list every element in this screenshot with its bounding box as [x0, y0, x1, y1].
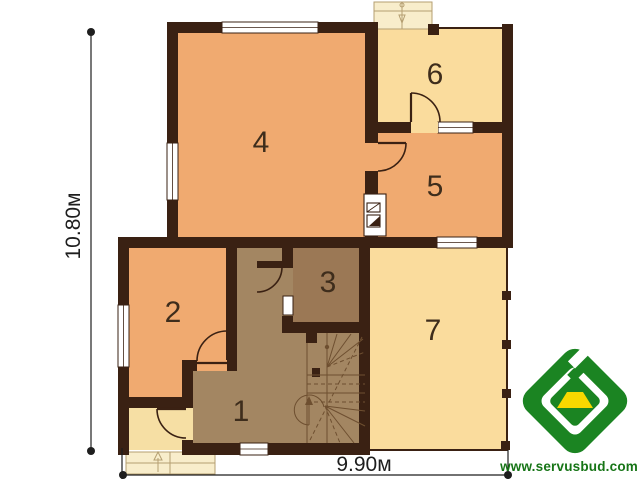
width-dimension-label: 9.90м — [336, 453, 391, 476]
room-label-6: 6 — [427, 58, 444, 91]
door-opening — [365, 143, 378, 171]
wall-stub — [306, 333, 317, 343]
company-logo: www.servusbud.com — [499, 342, 638, 474]
terrace-column — [502, 291, 511, 300]
vestibule-area — [129, 408, 183, 450]
room-label-2: 2 — [165, 296, 182, 329]
logo-website-text: www.servusbud.com — [499, 459, 638, 474]
room-label-3: 3 — [320, 266, 337, 299]
door-opening — [182, 408, 193, 440]
hall-area-upper — [237, 333, 359, 371]
floorplan-canvas: 10.80м 9.90м 1 2 3 4 5 6 7 www.servusbud… — [0, 0, 640, 480]
terrace-column — [501, 441, 510, 450]
wall-segment — [282, 237, 293, 268]
wall-stub — [257, 261, 283, 268]
room-7-area — [370, 248, 507, 450]
wall-segment — [167, 22, 178, 248]
dimension-dot — [87, 447, 95, 455]
room-label-1: 1 — [233, 395, 250, 428]
wall-segment — [182, 443, 240, 455]
height-dimension-label: 10.80м — [62, 193, 85, 260]
wall-segment — [473, 122, 502, 133]
terrace-column — [502, 340, 511, 349]
door-opening — [197, 360, 227, 371]
wall-segment — [118, 397, 193, 408]
door-opening — [411, 122, 438, 133]
chimney-block — [364, 194, 386, 236]
top-porch — [374, 2, 432, 29]
wall-segment — [118, 237, 437, 248]
wall-segment — [477, 237, 513, 248]
room-label-4: 4 — [253, 126, 270, 159]
room-label-5: 5 — [427, 170, 444, 203]
floor-plan-svg: 10.80м 9.90м 1 2 3 4 5 6 7 www.servusbud… — [0, 0, 640, 480]
stair-post-dot — [325, 345, 329, 349]
wall-segment — [227, 360, 237, 371]
entry-steps — [126, 452, 215, 474]
door-leaf — [283, 296, 293, 315]
wall-segment — [226, 237, 237, 363]
dimension-dot — [119, 471, 127, 479]
wall-segment — [282, 322, 370, 333]
stair-newel-post — [312, 368, 320, 377]
wall-segment — [359, 237, 370, 455]
dimension-dot — [87, 28, 95, 36]
wall-segment — [365, 122, 411, 133]
corridor-area — [237, 248, 282, 333]
terrace-column — [502, 389, 511, 398]
room-4-area — [178, 33, 365, 237]
room-2-area-lower — [129, 360, 182, 397]
room-label-7: 7 — [425, 314, 442, 347]
wall-segment — [502, 24, 513, 248]
porch-column — [428, 24, 439, 35]
